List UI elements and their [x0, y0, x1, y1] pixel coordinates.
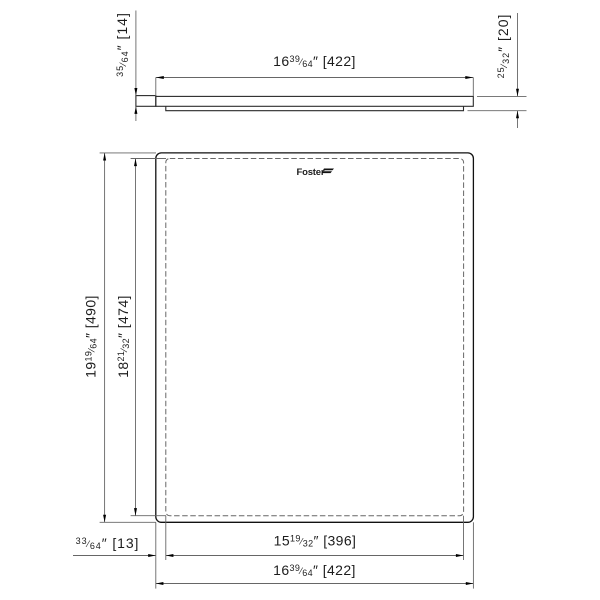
- svg-text:1821⁄32″ [474]: 1821⁄32″ [474]: [115, 295, 131, 378]
- svg-text:1519⁄32″ [396]: 1519⁄32″ [396]: [274, 533, 357, 549]
- svg-text:1639⁄64″ [422]: 1639⁄64″ [422]: [273, 53, 356, 69]
- svg-text:1639⁄64″ [422]: 1639⁄64″ [422]: [273, 562, 356, 578]
- svg-text:Foster: Foster: [297, 167, 325, 178]
- svg-text:1919⁄64″ [490]: 1919⁄64″ [490]: [82, 295, 98, 378]
